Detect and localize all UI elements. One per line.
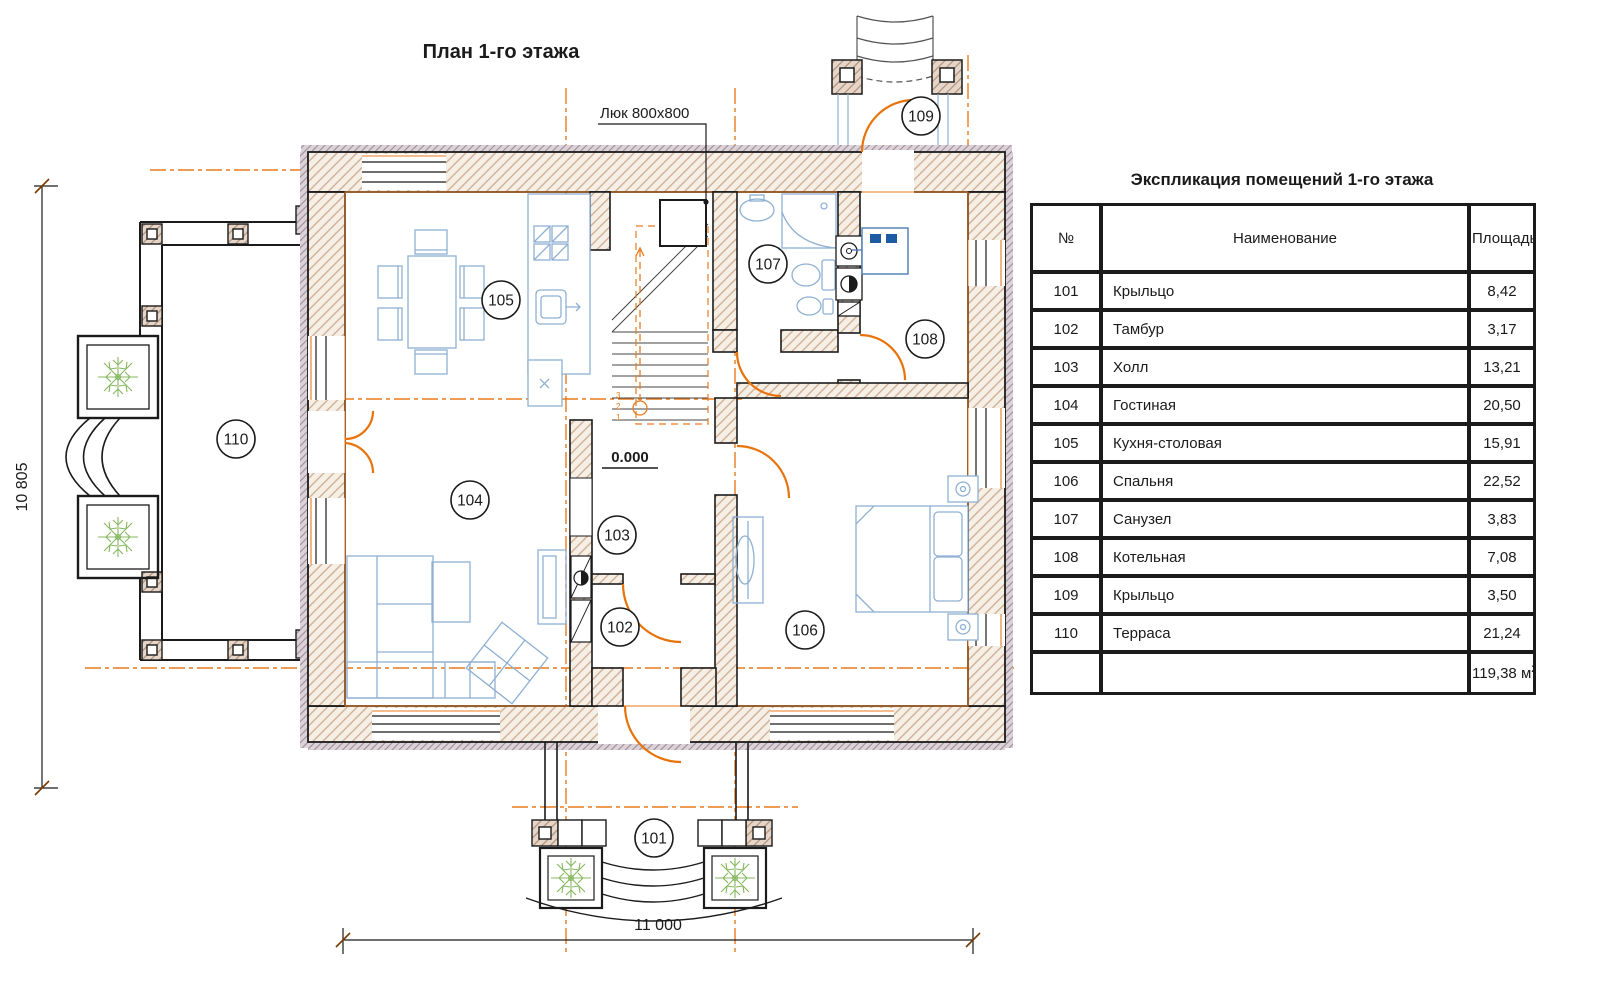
svg-text:106: 106 <box>792 623 818 640</box>
bedroom-door <box>737 446 789 498</box>
cell-area: 8,42 <box>1469 272 1535 310</box>
col-header-area: Площадь <box>1469 204 1535 272</box>
elevation-mark: 0.000 <box>602 449 658 468</box>
plant-icon <box>98 517 138 557</box>
cell-num: 103 <box>1031 348 1101 386</box>
nightstand <box>948 476 978 502</box>
table-row: 109Крыльцо3,50 <box>1031 576 1535 614</box>
staircase: 1 2 3 <box>612 224 708 424</box>
plant-icon <box>715 858 755 898</box>
stair-step-number: 2 <box>616 402 621 411</box>
dimension-width: 11 000 <box>336 917 980 954</box>
living-furniture <box>347 550 566 704</box>
plant-icon <box>98 357 138 397</box>
cell-area: 22,52 <box>1469 462 1535 500</box>
bed <box>856 506 968 612</box>
col-header-name: Наименование <box>1101 204 1469 272</box>
dimension-height: 10 805 <box>14 179 58 795</box>
hatch-label: Люк 800x800 <box>600 105 689 122</box>
cell-name: Тамбур <box>1101 310 1469 348</box>
washbasin-icon <box>740 195 774 221</box>
cell-name: Терраса <box>1101 614 1469 652</box>
cell-area: 15,91 <box>1469 424 1535 462</box>
room-label-106: 106 <box>786 611 824 649</box>
room-label-101: 101 <box>635 819 673 857</box>
cell-num: 110 <box>1031 614 1101 652</box>
terrace <box>66 206 308 660</box>
plan-title: План 1-го этажа <box>423 41 581 63</box>
cell-area: 3,17 <box>1469 310 1535 348</box>
table-row: 104Гостиная20,50 <box>1031 386 1535 424</box>
svg-text:108: 108 <box>912 332 938 349</box>
cell-num: 101 <box>1031 272 1101 310</box>
porch-109 <box>832 16 962 152</box>
screenshot-root: 1 2 3 Люк 800x800 <box>0 0 1600 982</box>
nightstand <box>948 614 978 640</box>
cell-name: Спальня <box>1101 462 1469 500</box>
svg-text:107: 107 <box>755 257 781 274</box>
table-row: 102Тамбур3,17 <box>1031 310 1535 348</box>
bedroom-furniture <box>733 476 978 640</box>
dim-height-label: 10 805 <box>14 462 31 511</box>
svg-text:110: 110 <box>224 432 249 449</box>
svg-text:104: 104 <box>457 493 483 510</box>
total-area: 119,38 м2 <box>1469 652 1535 694</box>
explication-panel: Экспликация помещений 1-го этажа № Наиме… <box>1030 170 1534 695</box>
table-row: 110Терраса21,24 <box>1031 614 1535 652</box>
cell-name: Котельная <box>1101 538 1469 576</box>
table-row: 107Санузел3,83 <box>1031 500 1535 538</box>
boiler-door <box>860 335 905 380</box>
cell-num: 107 <box>1031 500 1101 538</box>
cell-area: 7,08 <box>1469 538 1535 576</box>
svg-text:103: 103 <box>604 528 630 545</box>
cell-area: 20,50 <box>1469 386 1535 424</box>
terrace-steps <box>66 418 120 496</box>
doors <box>345 100 914 762</box>
coffee-table <box>466 622 547 703</box>
sofa <box>347 556 495 698</box>
table-header-row: № Наименование Площадь <box>1031 204 1535 272</box>
cell-name: Крыльцо <box>1101 576 1469 614</box>
cell-name: Кухня-столовая <box>1101 424 1469 462</box>
cell-num: 109 <box>1031 576 1101 614</box>
cell-num: 102 <box>1031 310 1101 348</box>
cell-num: 104 <box>1031 386 1101 424</box>
room-label-108: 108 <box>906 320 944 358</box>
cell-area: 13,21 <box>1469 348 1535 386</box>
room-label-104: 104 <box>451 481 489 519</box>
room-label-110: 110 <box>217 420 255 458</box>
table-row: 103Холл13,21 <box>1031 348 1535 386</box>
svg-text:109: 109 <box>908 109 934 126</box>
armchair <box>432 562 470 622</box>
cell-area: 3,50 <box>1469 576 1535 614</box>
table-title: Экспликация помещений 1-го этажа <box>1030 170 1534 190</box>
svg-text:0.000: 0.000 <box>611 449 649 466</box>
stair-step-number: 1 <box>616 413 621 422</box>
kitchen-cabinet <box>528 360 562 406</box>
tv-stand <box>538 550 566 624</box>
cell-name: Холл <box>1101 348 1469 386</box>
cell-num: 108 <box>1031 538 1101 576</box>
cell-name: Гостиная <box>1101 386 1469 424</box>
stair-step-number: 3 <box>616 391 621 400</box>
cell-num: 106 <box>1031 462 1101 500</box>
svg-text:102: 102 <box>607 620 633 637</box>
cell-num: 105 <box>1031 424 1101 462</box>
table-row: 101Крыльцо8,42 <box>1031 272 1535 310</box>
room-label-109: 109 <box>902 97 940 135</box>
toilet-icon <box>792 260 835 290</box>
cell-name: Санузел <box>1101 500 1469 538</box>
room-label-107: 107 <box>749 245 787 283</box>
table-row: 105Кухня-столовая15,91 <box>1031 424 1535 462</box>
terrace-door-leaf <box>345 411 373 439</box>
terrace-door-leaf <box>345 443 373 473</box>
cell-name: Крыльцо <box>1101 272 1469 310</box>
pump-icon <box>841 243 857 259</box>
room-label-103: 103 <box>598 516 636 554</box>
table-total-row: 119,38 м2 <box>1031 652 1535 694</box>
bidet-icon <box>797 297 833 315</box>
plant-icon <box>551 858 591 898</box>
wall-equipment <box>836 228 908 316</box>
table-row: 106Спальня22,52 <box>1031 462 1535 500</box>
shower-icon <box>782 194 836 248</box>
svg-text:101: 101 <box>641 831 667 848</box>
room-label-105: 105 <box>482 281 520 319</box>
cell-area: 21,24 <box>1469 614 1535 652</box>
explication-table: № Наименование Площадь 101Крыльцо8,42102… <box>1030 203 1536 695</box>
cell-area: 3,83 <box>1469 500 1535 538</box>
svg-text:105: 105 <box>488 293 514 310</box>
dim-width-label: 11 000 <box>634 917 682 934</box>
col-header-number: № <box>1031 204 1101 272</box>
table-row: 108Котельная7,08 <box>1031 538 1535 576</box>
dining-table <box>378 230 484 374</box>
room-label-102: 102 <box>601 608 639 646</box>
